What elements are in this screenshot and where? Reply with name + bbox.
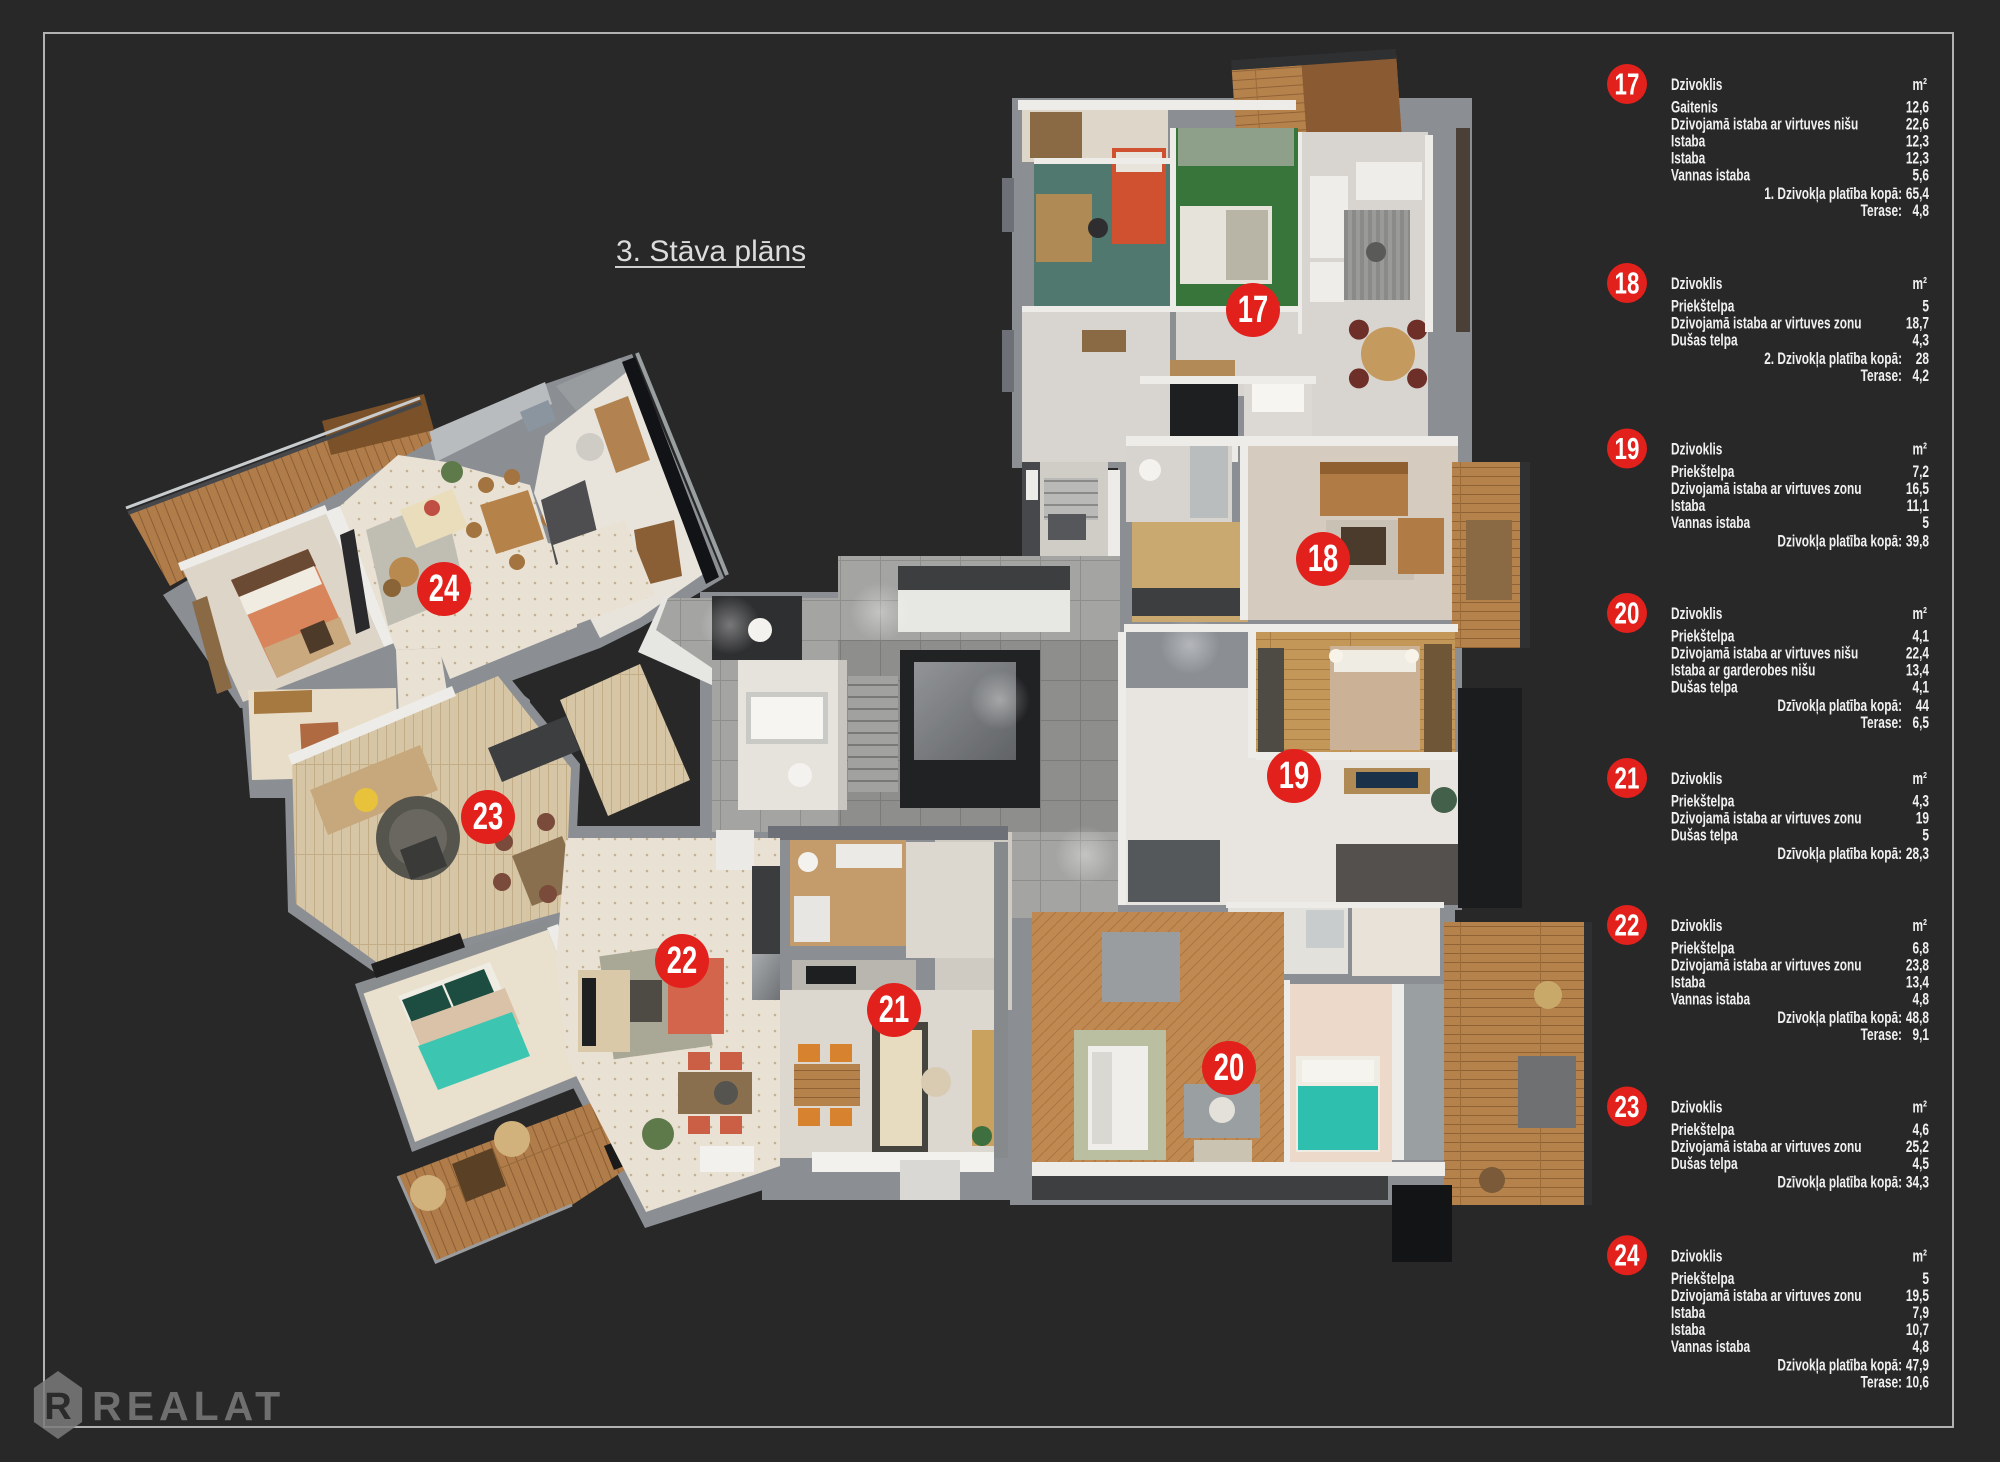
svg-text:44: 44 [1916, 697, 1929, 715]
svg-text:Dzivojamā istaba ar virtuves z: Dzivojamā istaba ar virtuves zonu [1671, 957, 1862, 975]
svg-text:Dzivokļa platība kopā:: Dzivokļa platība kopā: [1777, 1009, 1902, 1027]
svg-text:Dzivoklis: Dzivoklis [1671, 605, 1722, 623]
svg-text:Dzivoklis: Dzivoklis [1671, 275, 1722, 293]
svg-text:12,3: 12,3 [1906, 133, 1929, 151]
svg-text:m²: m² [1912, 441, 1927, 459]
svg-text:10,6: 10,6 [1906, 1374, 1929, 1392]
svg-text:Dzivoklis: Dzivoklis [1671, 917, 1722, 935]
svg-text:4,1: 4,1 [1913, 679, 1930, 697]
svg-text:m²: m² [1912, 76, 1927, 94]
svg-text:13,4: 13,4 [1906, 662, 1929, 680]
svg-text:Terase:: Terase: [1861, 202, 1902, 220]
svg-text:5: 5 [1922, 298, 1929, 316]
svg-text:Priekštelpa: Priekštelpa [1671, 298, 1735, 316]
svg-text:Vannas istaba: Vannas istaba [1671, 514, 1751, 532]
svg-text:4,8: 4,8 [1913, 991, 1930, 1009]
svg-text:19: 19 [1615, 431, 1640, 465]
svg-text:Dzivoklis: Dzivoklis [1671, 1248, 1722, 1266]
svg-text:Priekštelpa: Priekštelpa [1671, 628, 1735, 646]
svg-text:20: 20 [1615, 596, 1640, 630]
svg-text:Vannas istaba: Vannas istaba [1671, 167, 1751, 185]
svg-text:34,3: 34,3 [1906, 1174, 1929, 1192]
svg-text:12,3: 12,3 [1906, 150, 1929, 168]
svg-text:Terase:: Terase: [1861, 1026, 1902, 1044]
svg-text:m²: m² [1912, 917, 1927, 935]
svg-text:23: 23 [1615, 1089, 1640, 1123]
svg-text:Dzivojamā istaba ar virtuves z: Dzivojamā istaba ar virtuves zonu [1671, 1287, 1862, 1305]
svg-text:16,5: 16,5 [1906, 480, 1929, 498]
svg-text:R: R [44, 1386, 71, 1428]
svg-text:22,6: 22,6 [1906, 116, 1929, 134]
svg-text:28: 28 [1916, 350, 1929, 368]
svg-text:18: 18 [1308, 538, 1338, 580]
svg-text:21: 21 [879, 989, 909, 1031]
svg-text:Priekštelpa: Priekštelpa [1671, 463, 1735, 481]
svg-text:19: 19 [1279, 755, 1309, 797]
svg-text:18: 18 [1615, 266, 1640, 300]
svg-text:Istaba: Istaba [1671, 974, 1706, 992]
svg-text:12,6: 12,6 [1906, 99, 1929, 117]
svg-text:5: 5 [1922, 827, 1929, 845]
svg-text:22,4: 22,4 [1906, 645, 1929, 663]
svg-text:24: 24 [429, 568, 460, 610]
svg-text:3. Stāva plāns: 3. Stāva plāns [616, 235, 806, 268]
svg-text:5: 5 [1922, 1270, 1929, 1288]
svg-text:Dzivoklis: Dzivoklis [1671, 441, 1722, 459]
svg-text:5,6: 5,6 [1913, 167, 1930, 185]
svg-text:7,9: 7,9 [1913, 1304, 1930, 1322]
svg-text:9,1: 9,1 [1913, 1026, 1930, 1044]
svg-text:18,7: 18,7 [1906, 315, 1929, 333]
svg-text:Dzīvokļa platība kopā:: Dzīvokļa platība kopā: [1777, 845, 1902, 863]
svg-text:REALAT: REALAT [92, 1383, 285, 1429]
svg-text:Dzivojamā istaba ar virtuves n: Dzivojamā istaba ar virtuves nišu [1671, 116, 1858, 134]
svg-text:6,5: 6,5 [1913, 714, 1930, 732]
svg-text:19,5: 19,5 [1906, 1287, 1929, 1305]
svg-text:Priekštelpa: Priekštelpa [1671, 940, 1735, 958]
svg-text:Istaba ar garderobes nišu: Istaba ar garderobes nišu [1671, 662, 1815, 680]
svg-text:17: 17 [1615, 67, 1640, 101]
svg-text:Istaba: Istaba [1671, 1321, 1706, 1339]
svg-text:Dzivokļa platība kopā:: Dzivokļa platība kopā: [1777, 533, 1902, 551]
svg-text:Dzivojamā istaba ar virtuves n: Dzivojamā istaba ar virtuves nišu [1671, 645, 1858, 663]
svg-text:20: 20 [1214, 1047, 1244, 1089]
svg-text:Istaba: Istaba [1671, 133, 1706, 151]
svg-text:Priekštelpa: Priekštelpa [1671, 1121, 1735, 1139]
svg-text:21: 21 [1615, 761, 1640, 795]
svg-text:m²: m² [1912, 275, 1927, 293]
svg-text:Dušas telpa: Dušas telpa [1671, 1155, 1738, 1173]
svg-text:Priekštelpa: Priekštelpa [1671, 1270, 1735, 1288]
svg-text:Dzivoklis: Dzivoklis [1671, 770, 1722, 788]
svg-text:Dzīvokļa platība kopā:: Dzīvokļa platība kopā: [1777, 1174, 1902, 1192]
svg-text:4,3: 4,3 [1913, 793, 1930, 811]
svg-text:19: 19 [1916, 810, 1929, 828]
svg-text:25,2: 25,2 [1906, 1138, 1929, 1156]
svg-text:23,8: 23,8 [1906, 957, 1929, 975]
svg-text:10,7: 10,7 [1906, 1321, 1929, 1339]
svg-text:Dušas telpa: Dušas telpa [1671, 827, 1738, 845]
svg-text:Dzīvokļa platība kopā:: Dzīvokļa platība kopā: [1777, 697, 1902, 715]
svg-text:Istaba: Istaba [1671, 150, 1706, 168]
svg-text:Dušas telpa: Dušas telpa [1671, 332, 1738, 350]
svg-text:Terase:: Terase: [1861, 714, 1902, 732]
svg-text:Vannas istaba: Vannas istaba [1671, 1338, 1751, 1356]
svg-text:7,2: 7,2 [1913, 463, 1930, 481]
svg-text:m²: m² [1912, 1248, 1927, 1266]
svg-text:5: 5 [1922, 514, 1929, 532]
svg-text:6,8: 6,8 [1913, 940, 1930, 958]
svg-text:Terase:: Terase: [1861, 367, 1902, 385]
svg-text:Dzivojamā istaba ar virtuves z: Dzivojamā istaba ar virtuves zonu [1671, 1138, 1862, 1156]
svg-text:28,3: 28,3 [1906, 845, 1929, 863]
svg-text:Dzivokļa platība kopā:: Dzivokļa platība kopā: [1777, 1357, 1902, 1375]
svg-text:11,1: 11,1 [1907, 497, 1929, 515]
svg-text:47,9: 47,9 [1906, 1357, 1929, 1375]
svg-text:m²: m² [1912, 1099, 1927, 1117]
svg-text:4,6: 4,6 [1913, 1121, 1930, 1139]
svg-text:m²: m² [1912, 605, 1927, 623]
svg-text:Dušas telpa: Dušas telpa [1671, 679, 1738, 697]
svg-text:Gaitenis: Gaitenis [1671, 99, 1718, 117]
svg-text:Dzivojamā istaba ar virtuves z: Dzivojamā istaba ar virtuves zonu [1671, 315, 1862, 333]
svg-text:24: 24 [1615, 1238, 1640, 1272]
svg-text:1. Dzivokļa platība kopā:: 1. Dzivokļa platība kopā: [1764, 185, 1902, 203]
svg-text:Terase:: Terase: [1861, 1374, 1902, 1392]
svg-text:4,5: 4,5 [1913, 1155, 1930, 1173]
svg-text:48,8: 48,8 [1906, 1009, 1929, 1027]
svg-text:23: 23 [473, 796, 503, 838]
svg-text:4,8: 4,8 [1913, 202, 1930, 220]
svg-text:22: 22 [1615, 908, 1640, 942]
svg-text:39,8: 39,8 [1906, 533, 1929, 551]
svg-text:4,3: 4,3 [1913, 332, 1930, 350]
svg-text:m²: m² [1912, 770, 1927, 788]
svg-text:22: 22 [667, 940, 697, 982]
svg-text:4,1: 4,1 [1913, 628, 1930, 646]
svg-text:Istaba: Istaba [1671, 1304, 1706, 1322]
svg-text:Dzivojamā istaba ar virtuves z: Dzivojamā istaba ar virtuves zonu [1671, 810, 1862, 828]
svg-text:Dzivoklis: Dzivoklis [1671, 1099, 1722, 1117]
svg-text:65,4: 65,4 [1906, 185, 1929, 203]
svg-text:Dzivojamā istaba ar virtuves z: Dzivojamā istaba ar virtuves zonu [1671, 480, 1862, 498]
svg-text:4,8: 4,8 [1913, 1338, 1930, 1356]
svg-text:Istaba: Istaba [1671, 497, 1706, 515]
svg-text:17: 17 [1238, 289, 1268, 331]
svg-text:Vannas istaba: Vannas istaba [1671, 991, 1751, 1009]
svg-text:4,2: 4,2 [1913, 367, 1930, 385]
svg-text:Dzivoklis: Dzivoklis [1671, 76, 1722, 94]
svg-text:Priekštelpa: Priekštelpa [1671, 793, 1735, 811]
svg-text:2. Dzivokļa platība kopā:: 2. Dzivokļa platība kopā: [1764, 350, 1902, 368]
svg-text:13,4: 13,4 [1906, 974, 1929, 992]
